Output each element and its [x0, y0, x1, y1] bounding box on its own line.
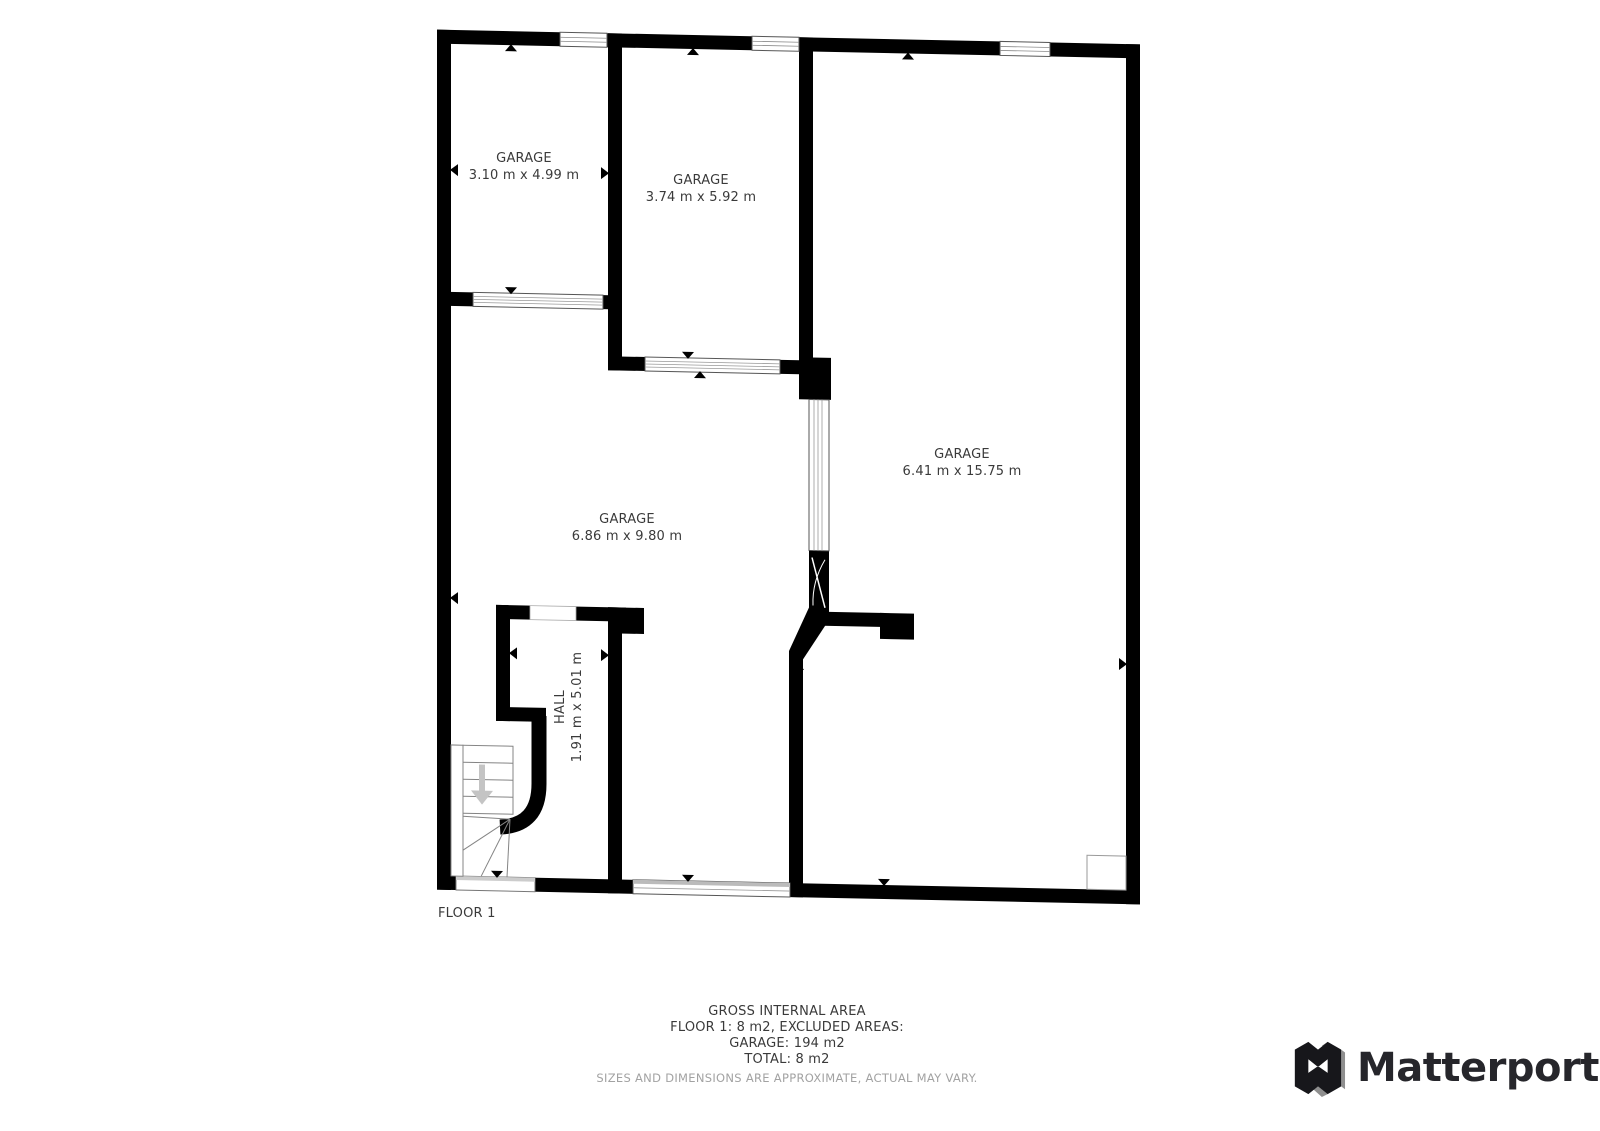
floorplan-drawing [0, 0, 1600, 1131]
room-name: GARAGE [469, 151, 579, 168]
room-dims: 6.86 m x 9.80 m [572, 529, 682, 546]
matterport-logo-icon [1290, 1038, 1346, 1098]
summary-disclaimer: SIZES AND DIMENSIONS ARE APPROXIMATE, AC… [596, 1070, 977, 1086]
room-name: GARAGE [646, 173, 756, 190]
summary-line-garage: GARAGE: 194 m2 [596, 1036, 977, 1052]
summary-title: GROSS INTERNAL AREA [596, 1004, 977, 1020]
room-label-garage-2: GARAGE 3.74 m x 5.92 m [646, 173, 756, 207]
room-label-garage-right: GARAGE 6.41 m x 15.75 m [903, 447, 1022, 481]
room-name: HALL [553, 652, 570, 762]
room-label-garage-main: GARAGE 6.86 m x 9.80 m [572, 512, 682, 546]
room-dims: 6.41 m x 15.75 m [903, 464, 1022, 481]
room-label-garage-1: GARAGE 3.10 m x 4.99 m [469, 151, 579, 185]
floor-label: FLOOR 1 [438, 906, 496, 921]
matterport-logo: Matterport [1290, 1038, 1599, 1098]
summary-line-floor: FLOOR 1: 8 m2, EXCLUDED AREAS: [596, 1020, 977, 1036]
floorplan-page: GARAGE 3.10 m x 4.99 m GARAGE 3.74 m x 5… [0, 0, 1600, 1131]
corner-nook [1087, 855, 1126, 890]
area-summary: GROSS INTERNAL AREA FLOOR 1: 8 m2, EXCLU… [596, 1004, 977, 1086]
room-label-hall: HALL 1.91 m x 5.01 m [553, 652, 587, 762]
room-dims: 3.74 m x 5.92 m [646, 190, 756, 207]
matterport-wordmark: Matterport [1357, 1045, 1599, 1091]
room-name: GARAGE [572, 512, 682, 529]
room-name: GARAGE [903, 447, 1022, 464]
room-dims: 3.10 m x 4.99 m [469, 168, 579, 185]
staircase [451, 745, 513, 877]
summary-line-total: TOTAL: 8 m2 [596, 1052, 977, 1068]
room-dims: 1.91 m x 5.01 m [570, 652, 587, 762]
